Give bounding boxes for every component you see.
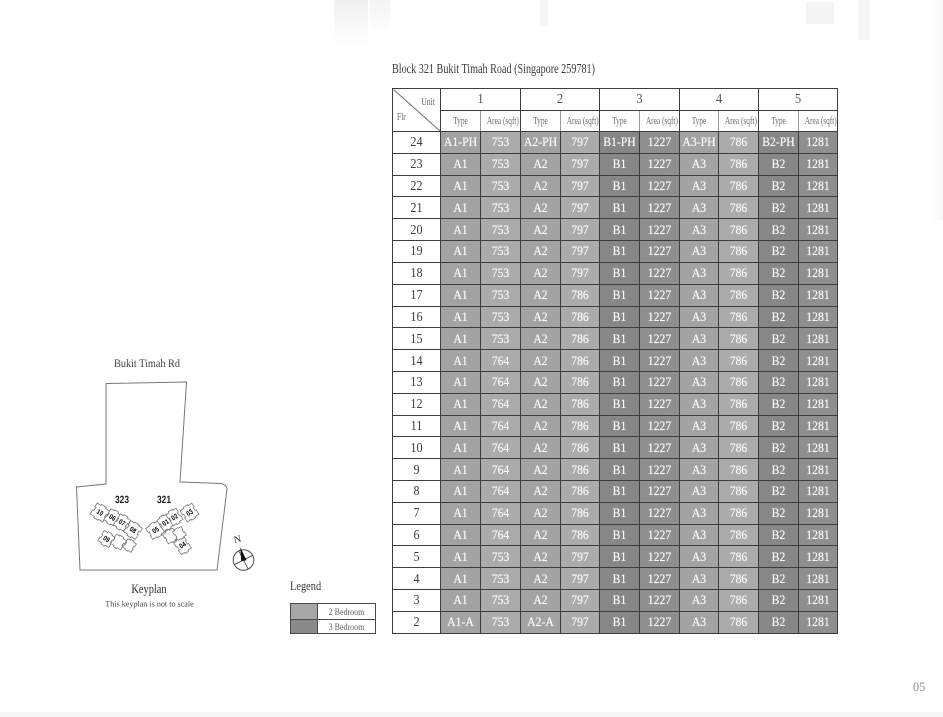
svg-text:321: 321	[157, 494, 171, 506]
svg-text:323: 323	[115, 494, 129, 506]
svg-text:Bukit Timah Rd: Bukit Timah Rd	[114, 358, 180, 370]
svg-text:N: N	[233, 534, 243, 546]
svg-text:This keyplan is not to scale: This keyplan is not to scale	[105, 600, 194, 609]
svg-text:Keyplan: Keyplan	[131, 581, 167, 596]
